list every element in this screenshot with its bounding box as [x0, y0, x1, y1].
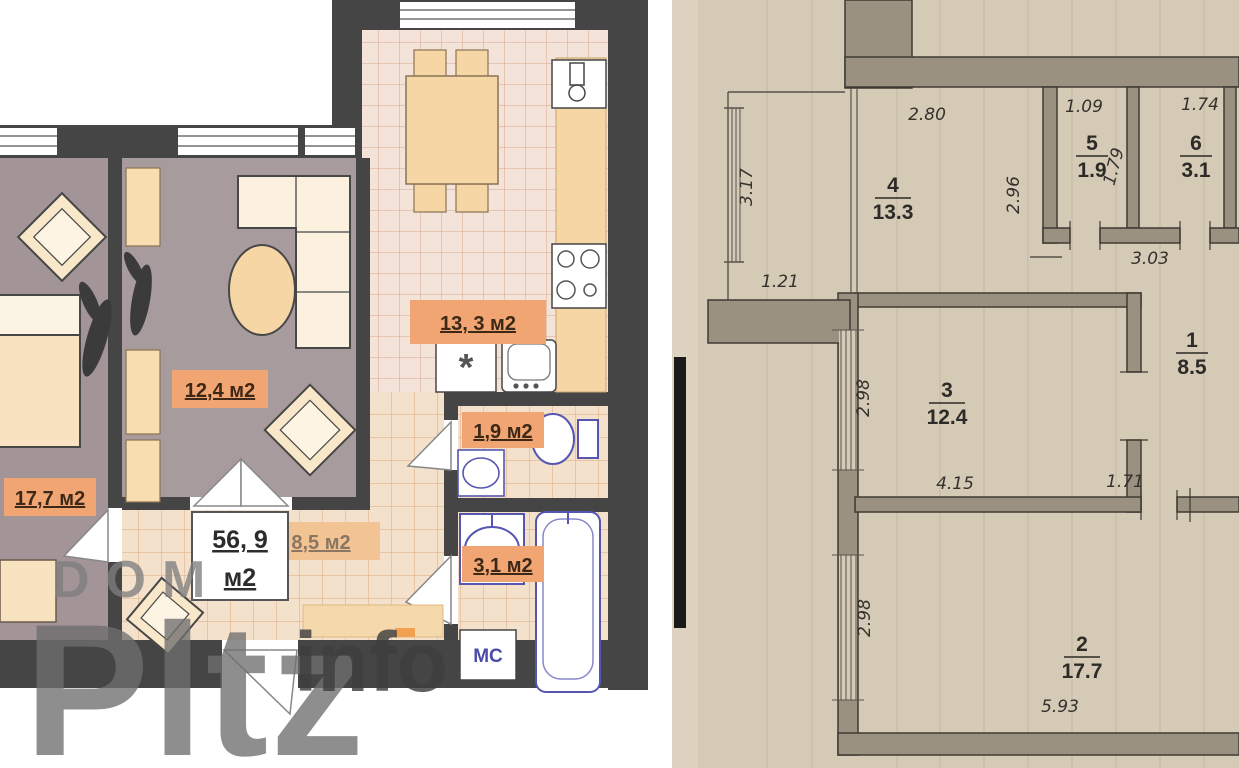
dim-room3-width: 4.15	[936, 474, 974, 494]
window-living-1	[178, 128, 298, 155]
bathtub-icon	[536, 512, 600, 692]
paper-background	[672, 0, 1239, 768]
room-2-number: 2	[1076, 633, 1088, 656]
dim-room6-width: 1.74	[1181, 95, 1219, 115]
room-4-area: 13.3	[873, 201, 914, 224]
dim-balcony-width: 1.21	[761, 272, 799, 292]
technical-plan-panel: 4 13.3 5 1.9 6 3.1 1 8.5 3	[672, 0, 1239, 768]
svg-text:*: *	[459, 347, 474, 389]
bathroom-area-label: 3,1 м2	[473, 555, 532, 577]
dim-room4-height: 2.96	[1004, 176, 1024, 214]
total-area-value: 56, 9	[212, 526, 268, 554]
scan-edge-bar	[674, 357, 686, 628]
room-6-area: 3.1	[1181, 159, 1211, 182]
washing-machine: МС	[460, 630, 516, 680]
hallway-rug	[303, 605, 443, 637]
room-4-number: 4	[887, 174, 899, 197]
furnished-plan-panel: *	[0, 0, 672, 768]
technical-plan-drawing: 4 13.3 5 1.9 6 3.1 1 8.5 3	[672, 0, 1239, 768]
total-area-box: 56, 9 м2	[192, 512, 288, 600]
kitchen-sink-icon	[552, 60, 606, 108]
dim-room2-width: 5.93	[1041, 697, 1079, 717]
dining-table	[406, 76, 498, 184]
room-3-area: 12.4	[927, 406, 968, 429]
fridge-icon: *	[436, 342, 496, 392]
sink-basin-icon	[502, 340, 556, 392]
bench	[0, 560, 56, 622]
washing-machine-label: МС	[473, 646, 503, 667]
dim-corridor-width: 3.03	[1131, 249, 1169, 269]
dim-room5-width: 1.09	[1065, 97, 1103, 117]
window-bedroom	[0, 128, 57, 155]
wc-sink-icon	[458, 450, 504, 496]
dim-room3-height: 2.98	[854, 379, 874, 417]
room-5-number: 5	[1086, 132, 1098, 155]
window-kitchen	[400, 2, 575, 28]
window-living-2	[305, 128, 355, 155]
room-6-number: 6	[1190, 132, 1202, 155]
floorplan-screenshot: *	[0, 0, 1239, 768]
room-3-number: 3	[941, 379, 953, 402]
dim-room4-width: 2.80	[908, 105, 946, 125]
hallway-area-label: 8,5 м2	[291, 532, 350, 554]
total-area-unit: м2	[224, 564, 256, 592]
dim-hall-opening: 1.71	[1106, 472, 1144, 492]
living-area-label: 12,4 м2	[185, 380, 255, 402]
bedroom-area-label: 17,7 м2	[15, 488, 85, 510]
kitchen-area-label: 13, 3 м2	[440, 313, 516, 335]
room-1-area: 8.5	[1177, 356, 1207, 379]
dim-room2-height: 2.98	[855, 599, 875, 637]
wc-area-label: 1,9 м2	[473, 421, 532, 443]
coffee-table	[229, 245, 295, 335]
furnished-plan-drawing: *	[0, 0, 672, 768]
room-1-number: 1	[1186, 329, 1198, 352]
stove-icon	[552, 244, 606, 308]
bed	[0, 295, 80, 447]
room-2-area: 17.7	[1062, 660, 1103, 683]
dim-balcony-height: 3.17	[737, 168, 757, 206]
